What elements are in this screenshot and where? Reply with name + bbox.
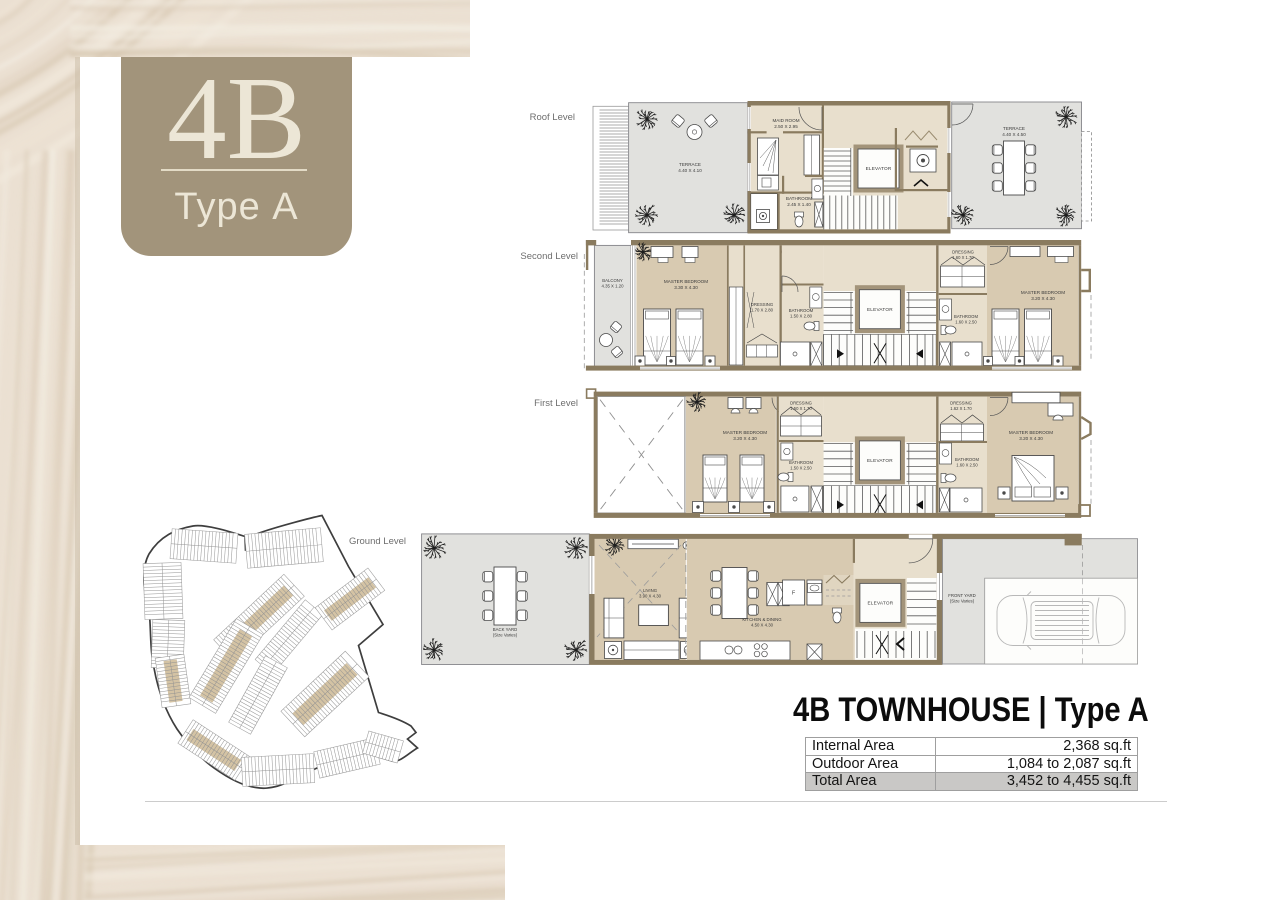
svg-text:BATHROOM: BATHROOM bbox=[954, 314, 978, 319]
svg-text:BACK YARD: BACK YARD bbox=[493, 627, 517, 632]
svg-text:4.40 X 4.10: 4.40 X 4.10 bbox=[678, 168, 702, 173]
svg-text:ELEVATOR: ELEVATOR bbox=[867, 601, 893, 606]
svg-text:BATHROOM: BATHROOM bbox=[786, 196, 812, 201]
svg-text:3.90 X 4.30: 3.90 X 4.30 bbox=[639, 594, 662, 599]
svg-text:MAID ROOM: MAID ROOM bbox=[772, 118, 799, 123]
svg-text:3.20 X 4.30: 3.20 X 4.30 bbox=[1019, 436, 1043, 441]
svg-text:4.50 X 4.30: 4.50 X 4.30 bbox=[751, 623, 774, 628]
svg-text:4.35 X 1.20: 4.35 X 1.20 bbox=[602, 284, 625, 289]
svg-text:4.40 X 4.50: 4.40 X 4.50 bbox=[1002, 132, 1026, 137]
svg-text:2.50 X 2.95: 2.50 X 2.95 bbox=[774, 124, 798, 129]
svg-text:MASTER BEDROOM: MASTER BEDROOM bbox=[723, 430, 767, 435]
svg-text:ELEVATOR: ELEVATOR bbox=[867, 307, 893, 312]
svg-text:ELEVATOR: ELEVATOR bbox=[866, 166, 892, 171]
svg-text:DRESSING: DRESSING bbox=[790, 401, 812, 406]
svg-text:1.50 X 2.50: 1.50 X 2.50 bbox=[790, 465, 812, 470]
svg-text:BALCONY: BALCONY bbox=[602, 278, 623, 283]
svg-text:1.70 X 2.80: 1.70 X 2.80 bbox=[751, 308, 774, 313]
svg-text:Second Level: Second Level bbox=[520, 251, 578, 262]
svg-text:3.20 X 4.30: 3.20 X 4.30 bbox=[1031, 296, 1055, 301]
svg-text:1.60 X 2.50: 1.60 X 2.50 bbox=[956, 462, 978, 467]
svg-text:First Level: First Level bbox=[534, 398, 578, 409]
svg-text:BATHROOM: BATHROOM bbox=[955, 457, 979, 462]
svg-text:3.30 X 4.30: 3.30 X 4.30 bbox=[674, 285, 698, 290]
svg-text:(Size Varies): (Size Varies) bbox=[950, 599, 975, 604]
svg-text:1.62 X 1.70: 1.62 X 1.70 bbox=[950, 406, 972, 411]
svg-text:(Size Varies): (Size Varies) bbox=[493, 633, 518, 638]
svg-text:ELEVATOR: ELEVATOR bbox=[867, 458, 893, 463]
svg-text:BATHROOM: BATHROOM bbox=[789, 460, 813, 465]
svg-text:BATHROOM: BATHROOM bbox=[789, 308, 814, 313]
svg-text:TERRACE: TERRACE bbox=[679, 162, 701, 167]
svg-text:1.60 X 2.50: 1.60 X 2.50 bbox=[955, 319, 977, 324]
svg-text:KITCHEN & DINING: KITCHEN & DINING bbox=[742, 617, 782, 622]
svg-text:DRESSING: DRESSING bbox=[952, 250, 974, 255]
svg-text:3.20 X 4.30: 3.20 X 4.30 bbox=[733, 436, 757, 441]
svg-text:1.50 X 2.80: 1.50 X 2.80 bbox=[790, 314, 813, 319]
svg-text:Ground Level: Ground Level bbox=[349, 536, 406, 547]
svg-text:DRESSING: DRESSING bbox=[751, 302, 774, 307]
svg-text:DRESSING: DRESSING bbox=[950, 401, 972, 406]
svg-text:MASTER BEDROOM: MASTER BEDROOM bbox=[664, 279, 708, 284]
svg-text:TERRACE: TERRACE bbox=[1003, 126, 1025, 131]
svg-text:FRONT YARD: FRONT YARD bbox=[948, 593, 975, 598]
svg-text:Roof Level: Roof Level bbox=[530, 112, 575, 123]
svg-text:2.45 X 1.40: 2.45 X 1.40 bbox=[787, 202, 811, 207]
svg-text:MASTER BEDROOM: MASTER BEDROOM bbox=[1009, 430, 1053, 435]
svg-text:LIVING: LIVING bbox=[643, 588, 658, 593]
svg-text:MASTER BEDROOM: MASTER BEDROOM bbox=[1021, 290, 1065, 295]
